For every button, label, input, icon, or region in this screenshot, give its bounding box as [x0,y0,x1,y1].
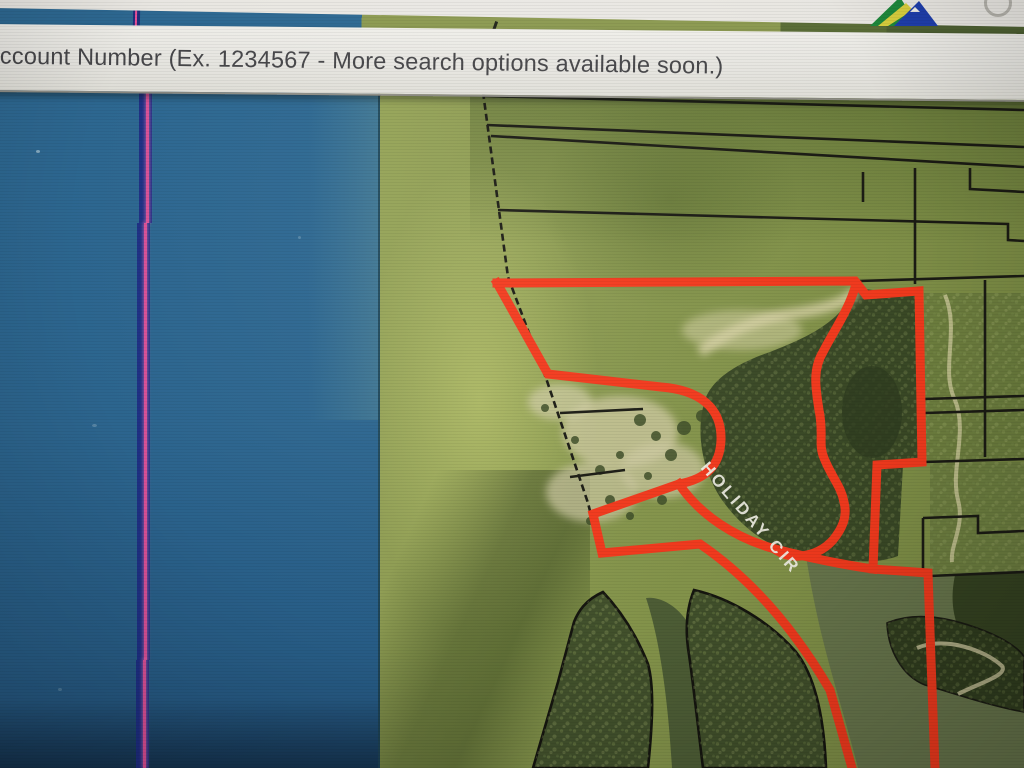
account-search-label: Account Number (Ex. 1234567 - More searc… [0,42,724,79]
parcel-map-overlay: HOLIDAY CIR [0,0,1024,768]
map-viewport[interactable]: HOLIDAY CIR [0,0,1024,768]
forest-island [700,288,918,561]
bottom-left-island [533,592,652,768]
page: HOLIDAY CIR Account Number (Ex. 1234567 … [0,0,1024,768]
bottom-right-island [687,590,826,768]
app-logo-icon[interactable] [866,0,940,28]
account-search-bar[interactable]: Account Number (Ex. 1234567 - More searc… [0,24,1024,102]
